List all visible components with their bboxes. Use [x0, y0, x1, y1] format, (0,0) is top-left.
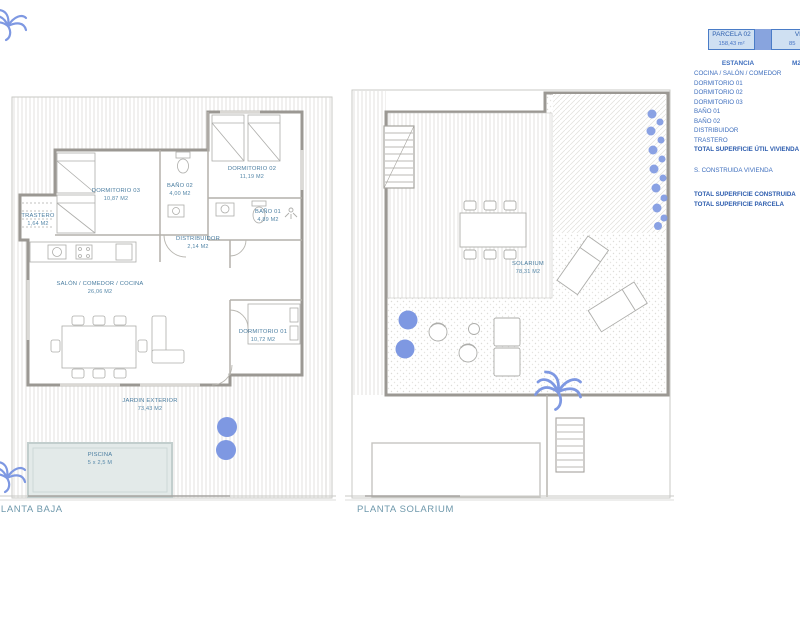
room-label-dormitorio-03: DORMITORIO 03 10,87 M2 [92, 188, 140, 203]
header-connector [755, 29, 771, 50]
room-label-salon-comedor-cocina: SALÓN / COMEDOR / COCINA 26,06 M2 [57, 281, 144, 296]
planta-baja-drawing [0, 10, 332, 498]
room-label-bano-01: BAÑO 01 4,89 M2 [255, 209, 281, 224]
parcela-label: PARCELA 02 [709, 30, 754, 40]
room-label-dormitorio-02: DORMITORIO 02 11,19 M2 [228, 166, 276, 181]
table-row-total-parcela: TOTAL SUPERFICIE PARCELA [694, 200, 800, 210]
palm-tree-icon [0, 10, 26, 40]
room-label-trastero: TRASTERO 1,64 M2 [21, 213, 54, 228]
room-label-piscina: PISCINA 5 x 2,5 M [88, 452, 113, 467]
floorplan-canvas [0, 0, 800, 640]
table-row-dormitorio-02: DORMITORIO 02 [694, 88, 800, 98]
parcela-info-box: PARCELA 02 158,43 m² [708, 29, 755, 50]
kitchen-counter [30, 242, 136, 262]
parcela-area-value: 158,43 m² [709, 40, 754, 48]
table-row-bano-01: BAÑO 01 [694, 107, 800, 117]
stairs-lower [556, 418, 584, 472]
bed [57, 153, 95, 233]
toilet [176, 152, 190, 173]
table-row-total-construida: TOTAL SUPERFICIE CONSTRUIDA [694, 190, 800, 200]
table-header-unit: M2 [792, 59, 800, 69]
table-row-s-construida-vivienda: S. CONSTRUIDA VIVIENDA [694, 166, 800, 176]
plan-title-planta-baja: PLANTA BAJA [0, 504, 63, 515]
lower-void [372, 443, 540, 497]
room-label-distribuidor: DISTRIBUIDOR 2,14 M2 [176, 236, 220, 251]
table-row-total-util-vivienda: TOTAL SUPERFICIE ÚTIL VIVIENDA [694, 145, 800, 155]
sink [168, 205, 184, 217]
table-row-trastero: TRASTERO [694, 136, 800, 146]
table-row-dormitorio-03: DORMITORIO 03 [694, 98, 800, 108]
table-row-dormitorio-01: DORMITORIO 01 [694, 79, 800, 89]
room-label-jardin-exterior: JARDIN EXTERIOR 73,43 M2 [122, 398, 177, 413]
table-header-estancia: ESTANCIA [694, 59, 782, 69]
vivienda-label: VIVIENDA [772, 30, 800, 40]
room-label-bano-02: BAÑO 02 4,00 M2 [167, 183, 193, 198]
room-label-solarium: SOLARIUM 78,31 M2 [512, 261, 544, 276]
sink [216, 203, 234, 216]
floorplan-sheet: { "header": { "parcela": { "label": "PAR… [0, 0, 800, 640]
plan-title-planta-solarium: PLANTA SOLARIUM [357, 504, 454, 515]
table-row-cocina-salon-comedor: COCINA / SALÓN / COMEDOR [694, 69, 800, 79]
planta-solarium-drawing [352, 90, 670, 498]
table-gap [694, 155, 800, 166]
vivienda-info-box: VIVIENDA 85 [771, 29, 800, 50]
table-row-bano-02: BAÑO 02 [694, 117, 800, 127]
staircase [384, 126, 414, 188]
table-gap [694, 175, 800, 190]
table-row-distribuidor: DISTRIBUIDOR [694, 126, 800, 136]
vivienda-area-value: 85 [772, 40, 800, 48]
surface-summary-table: ESTANCIA M2 COCINA / SALÓN / COMEDOR DOR… [694, 59, 800, 209]
room-label-dormitorio-01: DORMITORIO 01 10,72 M2 [239, 329, 287, 344]
